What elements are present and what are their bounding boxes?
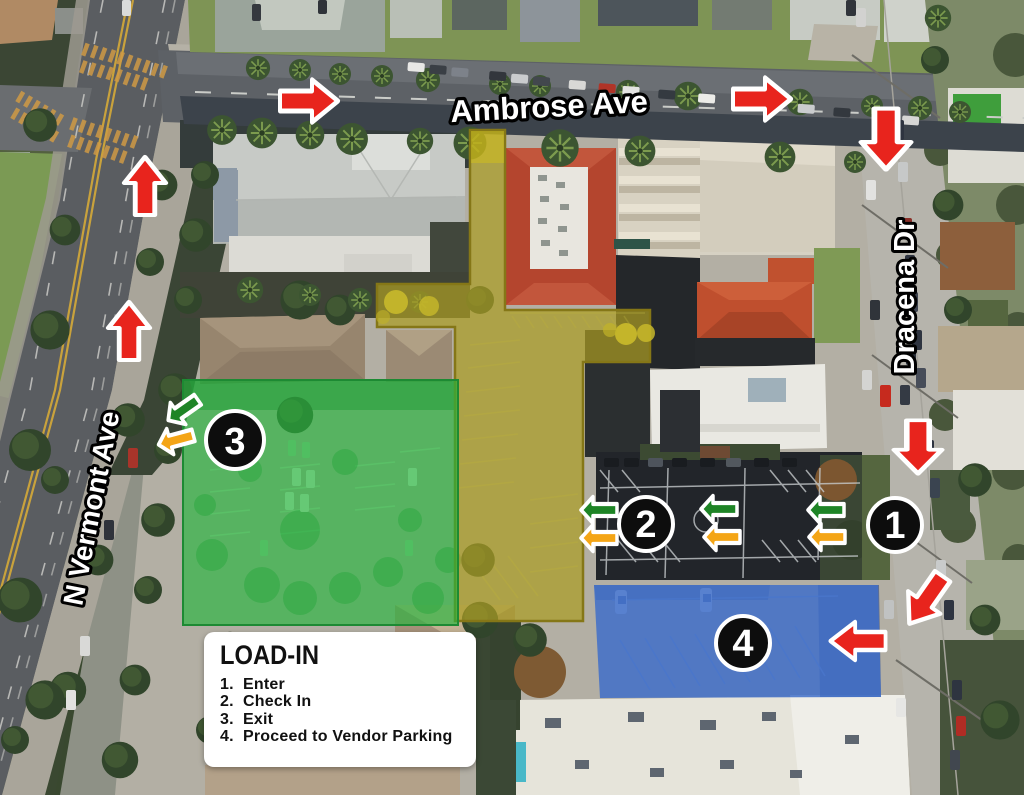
svg-text:4: 4 [732,623,753,665]
svg-text:1: 1 [884,505,905,547]
svg-text:2: 2 [635,504,656,546]
svg-text:3: 3 [224,421,245,463]
svg-text:Dracena Dr: Dracena Dr [889,220,921,375]
